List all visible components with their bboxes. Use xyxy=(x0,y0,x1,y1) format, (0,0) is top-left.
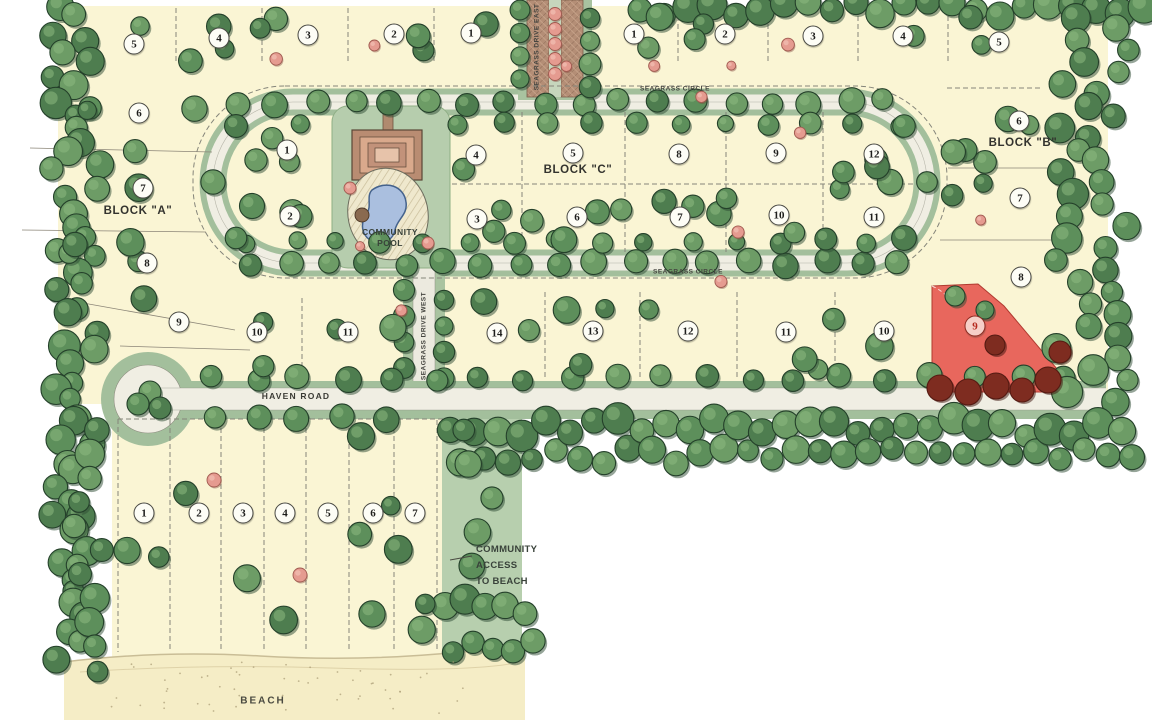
beach-access-label-line: COMMUNITY xyxy=(476,542,537,558)
lot-marker-block-c-7[interactable]: 7 xyxy=(670,207,691,228)
lot-marker-block-a-8[interactable]: 8 xyxy=(137,253,158,274)
lot-marker-block-a-3[interactable]: 3 xyxy=(298,25,319,46)
lot-marker-block-b-6[interactable]: 6 xyxy=(1009,111,1030,132)
block-label-block-c: BLOCK "C" xyxy=(544,164,613,176)
pool-label-line: POOL xyxy=(362,238,418,249)
lot-marker-block-c-5[interactable]: 5 xyxy=(563,143,584,164)
lot-marker-block-c-6[interactable]: 6 xyxy=(567,207,588,228)
pool-label-line: COMMUNITY xyxy=(362,227,418,238)
lot-marker-south-3[interactable]: 3 xyxy=(233,503,254,524)
lot-marker-south-2[interactable]: 2 xyxy=(189,503,210,524)
block-label-block-b: BLOCK "B" xyxy=(989,137,1058,149)
lot-marker-block-a-4[interactable]: 4 xyxy=(209,28,230,49)
lot-marker-block-b-5[interactable]: 5 xyxy=(989,32,1010,53)
lot-marker-block-a-7[interactable]: 7 xyxy=(133,178,154,199)
community-pool-label: COMMUNITYPOOL xyxy=(362,227,418,249)
lot-marker-block-c-4[interactable]: 4 xyxy=(466,145,487,166)
lot-marker-block-a-9[interactable]: 9 xyxy=(169,312,190,333)
lot-marker-block-c-9[interactable]: 9 xyxy=(766,143,787,164)
lot-marker-block-a-2[interactable]: 2 xyxy=(384,24,405,45)
lot-marker-block-a-6[interactable]: 6 xyxy=(129,103,150,124)
lot-marker-south-5[interactable]: 5 xyxy=(318,503,339,524)
lot-marker-south-6[interactable]: 6 xyxy=(363,503,384,524)
lot-marker-block-c-11[interactable]: 11 xyxy=(864,207,885,228)
lot-marker-block-c-12[interactable]: 12 xyxy=(678,321,699,342)
road-label-seagrass-circle-top: SEAGRASS CIRCLE xyxy=(640,86,710,93)
lot-marker-block-b-9[interactable]: 9 xyxy=(965,316,986,337)
road-label-seagrass-circle-bottom: SEAGRASS CIRCLE xyxy=(653,269,723,276)
lot-marker-south-4[interactable]: 4 xyxy=(275,503,296,524)
site-plan-canvas xyxy=(0,0,1152,720)
road-label-seagrass-drive-west: SEAGRASS DRIVE WEST xyxy=(421,292,428,380)
lot-marker-block-c-14[interactable]: 14 xyxy=(487,323,508,344)
lot-marker-block-b-3[interactable]: 3 xyxy=(803,26,824,47)
lot-marker-block-c-3[interactable]: 3 xyxy=(467,209,488,230)
beach-access-label-line: ACCESS xyxy=(476,558,537,574)
lot-marker-block-b-4[interactable]: 4 xyxy=(893,26,914,47)
site-plan: SEAGRASS CIRCLE SEAGRASS CIRCLE SEAGRASS… xyxy=(0,0,1152,720)
lot-marker-south-1[interactable]: 1 xyxy=(134,503,155,524)
beach-access-label: COMMUNITYACCESSTO BEACH xyxy=(476,542,537,590)
road-label-haven-road: HAVEN ROAD xyxy=(262,391,331,401)
lot-marker-block-c-12[interactable]: 12 xyxy=(864,144,885,165)
block-label-block-a: BLOCK "A" xyxy=(104,205,173,217)
lot-marker-block-a-11[interactable]: 11 xyxy=(338,322,359,343)
lot-marker-block-c-2[interactable]: 2 xyxy=(280,206,301,227)
lot-marker-block-b-10[interactable]: 10 xyxy=(874,321,895,342)
lot-marker-block-c-13[interactable]: 13 xyxy=(583,321,604,342)
lot-marker-block-c-10[interactable]: 10 xyxy=(769,205,790,226)
lot-marker-block-a-10[interactable]: 10 xyxy=(247,322,268,343)
lot-marker-block-a-5[interactable]: 5 xyxy=(124,34,145,55)
lot-marker-block-b-8[interactable]: 8 xyxy=(1011,267,1032,288)
beach-label: BEACH xyxy=(240,696,286,707)
lot-marker-block-c-8[interactable]: 8 xyxy=(669,144,690,165)
lot-marker-block-b-1[interactable]: 1 xyxy=(624,24,645,45)
beach-access-label-line: TO BEACH xyxy=(476,574,537,590)
lot-marker-block-a-1[interactable]: 1 xyxy=(461,23,482,44)
lot-marker-block-c-1[interactable]: 1 xyxy=(277,140,298,161)
lot-marker-block-b-2[interactable]: 2 xyxy=(715,24,736,45)
lot-marker-block-b-7[interactable]: 7 xyxy=(1010,188,1031,209)
lot-marker-south-7[interactable]: 7 xyxy=(405,503,426,524)
road-label-seagrass-drive-east: SEAGRASS DRIVE EAST xyxy=(534,4,541,91)
lot-marker-block-b-11[interactable]: 11 xyxy=(776,322,797,343)
